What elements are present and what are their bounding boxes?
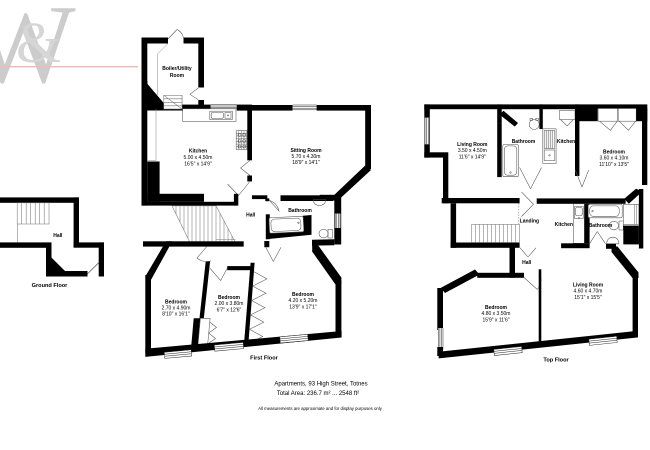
svg-text:Bedroom: Bedroom <box>165 299 188 305</box>
svg-text:Bathroom: Bathroom <box>589 223 613 229</box>
svg-text:Bathroom: Bathroom <box>512 139 536 145</box>
svg-text:Top Floor: Top Floor <box>543 358 569 364</box>
svg-text:15'1" x 15'5": 15'1" x 15'5" <box>574 295 602 301</box>
svg-text:Kitchen: Kitchen <box>557 139 575 145</box>
svg-text:&: & <box>16 10 61 75</box>
svg-text:Boiler/Utility: Boiler/Utility <box>162 66 192 72</box>
svg-text:15'9" x 11'6": 15'9" x 11'6" <box>482 317 509 323</box>
svg-text:Bedroom: Bedroom <box>485 305 508 311</box>
svg-text:2.00 x 3.80m: 2.00 x 3.80m <box>215 301 244 307</box>
svg-text:Hall: Hall <box>246 213 256 219</box>
svg-text:Bedroom: Bedroom <box>218 295 241 301</box>
svg-text:5.70 x 4.30m: 5.70 x 4.30m <box>292 154 321 160</box>
svg-text:Hall: Hall <box>53 233 63 239</box>
svg-text:Bedroom: Bedroom <box>292 292 315 298</box>
svg-text:6'7" x 12'6": 6'7" x 12'6" <box>217 307 242 313</box>
svg-text:Room: Room <box>170 73 185 79</box>
svg-text:13'9" x 17'1": 13'9" x 17'1" <box>289 304 317 310</box>
svg-text:Hall: Hall <box>522 260 532 266</box>
svg-text:11'10" x 13'5": 11'10" x 13'5" <box>599 162 629 168</box>
svg-text:Living Room: Living Room <box>457 142 488 148</box>
svg-text:Kitchen: Kitchen <box>555 222 573 228</box>
svg-text:4.60 x 4.70m: 4.60 x 4.70m <box>574 289 603 295</box>
svg-text:Bathroom: Bathroom <box>288 208 312 214</box>
svg-text:4.80 x 3.50m: 4.80 x 3.50m <box>482 311 511 317</box>
svg-text:First Floor: First Floor <box>250 356 278 362</box>
svg-text:All measurements are approxima: All measurements are approximate and for… <box>258 406 383 411</box>
svg-text:4.20 x 5.20m: 4.20 x 5.20m <box>289 298 318 304</box>
svg-text:Landing: Landing <box>520 219 539 225</box>
svg-text:3.60 x 4.10m: 3.60 x 4.10m <box>600 156 629 162</box>
svg-text:8'10" x 16'1": 8'10" x 16'1" <box>162 312 190 318</box>
svg-text:18'9" x 14'1": 18'9" x 14'1" <box>292 160 320 166</box>
svg-text:Apartments, 93 High Street, To: Apartments, 93 High Street, Totnes <box>274 382 367 388</box>
svg-text:3.50 x 4.50m: 3.50 x 4.50m <box>458 148 487 154</box>
svg-text:Ground Floor: Ground Floor <box>32 283 69 289</box>
svg-text:Kitchen: Kitchen <box>189 149 207 155</box>
svg-text:Living Room: Living Room <box>573 283 604 289</box>
svg-text:Bedroom: Bedroom <box>603 150 626 156</box>
svg-text:5.00 x 4.50m: 5.00 x 4.50m <box>184 155 213 161</box>
svg-text:11'6" x 14'9": 11'6" x 14'9" <box>459 154 486 160</box>
svg-text:2.70 x 4.90m: 2.70 x 4.90m <box>162 306 191 312</box>
svg-text:Total Area: 236.7 m² ... 2548: Total Area: 236.7 m² ... 2548 ft² <box>277 391 359 397</box>
svg-text:16'5" x 14'9": 16'5" x 14'9" <box>184 161 212 167</box>
